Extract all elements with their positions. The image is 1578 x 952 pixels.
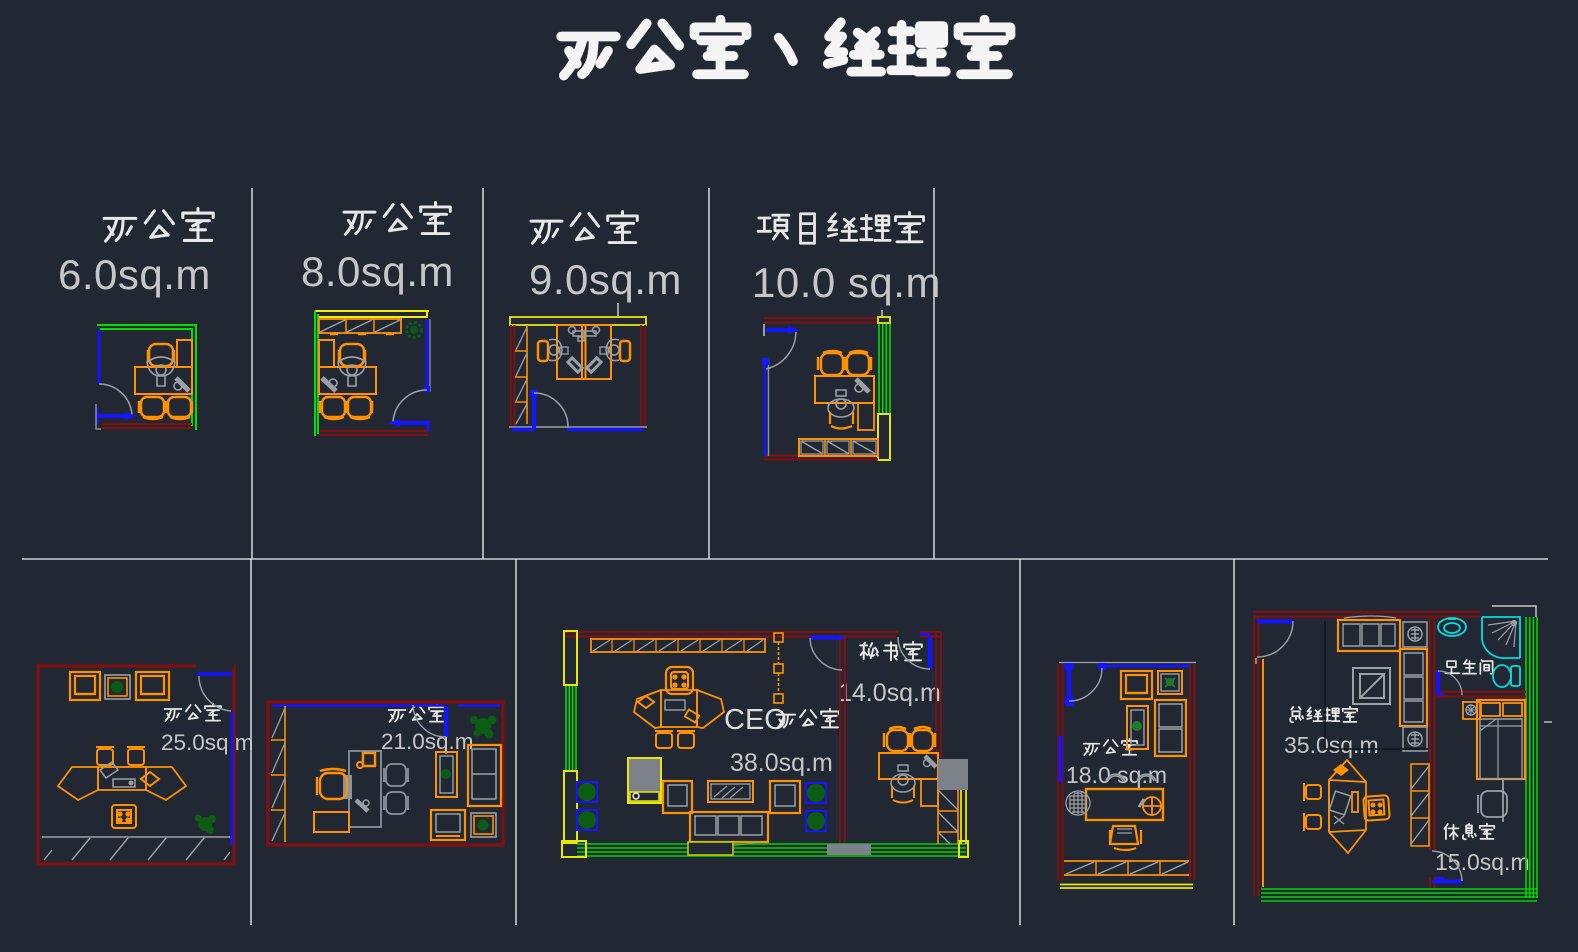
svg-text:35.0sq.m: 35.0sq.m — [1284, 732, 1379, 758]
svg-text:8.0sq.m: 8.0sq.m — [301, 248, 454, 295]
svg-text:CEO: CEO — [724, 704, 787, 736]
svg-text:21.0sq.m: 21.0sq.m — [381, 729, 474, 754]
svg-text:10.0 sq.m: 10.0 sq.m — [752, 259, 941, 306]
svg-text:9.0sq.m: 9.0sq.m — [529, 256, 682, 303]
svg-text:25.0sq.m: 25.0sq.m — [161, 730, 254, 755]
svg-text:38.0sq.m: 38.0sq.m — [730, 749, 833, 777]
svg-text:15.0sq.m: 15.0sq.m — [1435, 849, 1530, 875]
svg-text:6.0sq.m: 6.0sq.m — [58, 251, 211, 298]
svg-text:14.0sq.m: 14.0sq.m — [838, 679, 941, 707]
